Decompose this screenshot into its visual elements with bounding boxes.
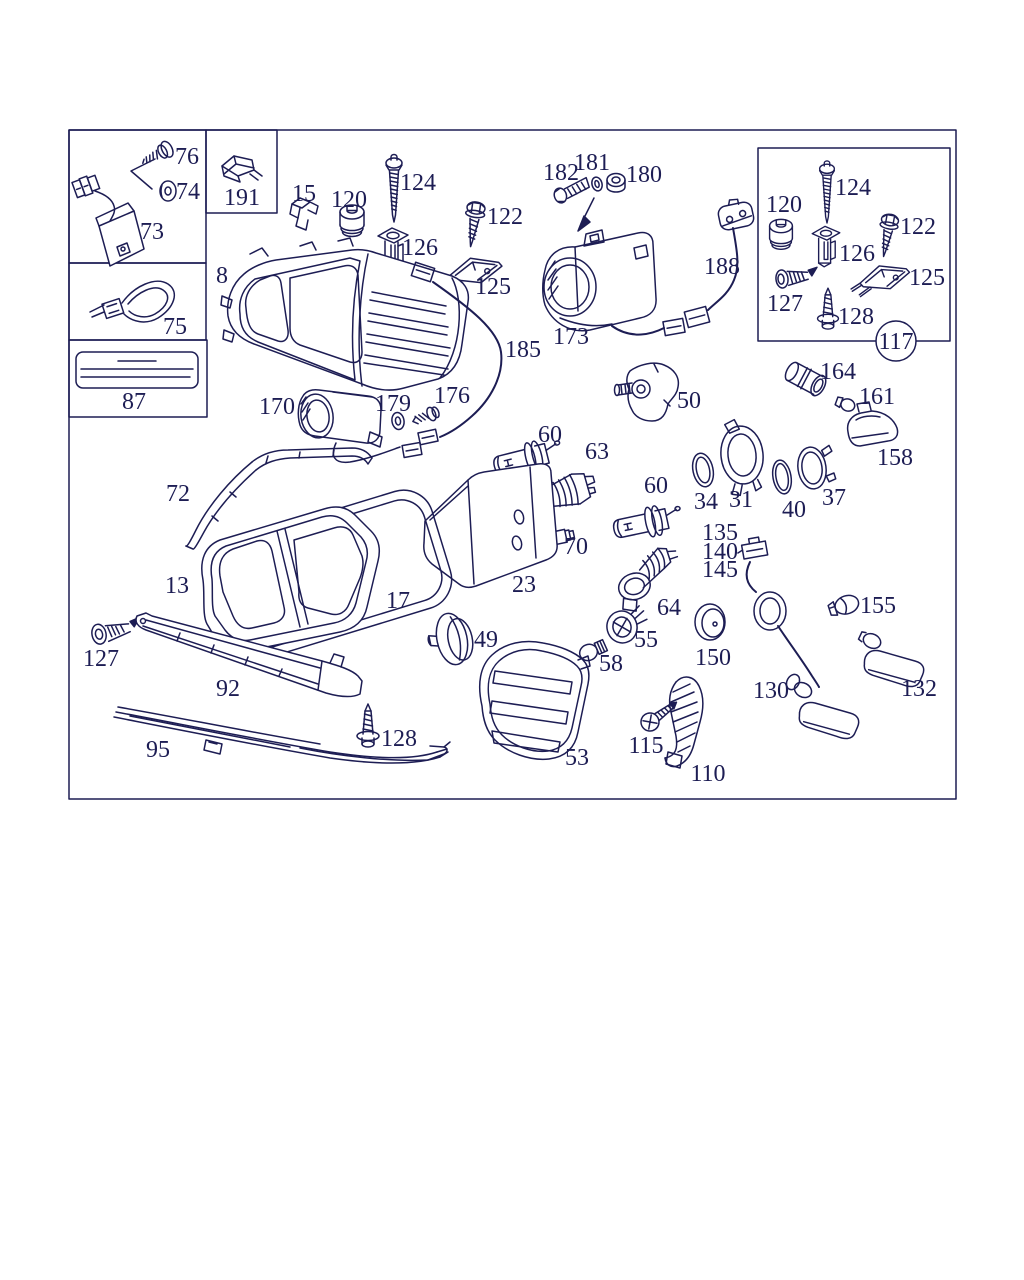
part-label-95: 95 [146,737,170,763]
part-label-145: 145 [702,557,738,583]
part-label-180: 180 [626,162,662,188]
part-128-screw-b [818,288,839,329]
part-label-60b: 60 [644,473,668,499]
part-label-17: 17 [386,588,410,614]
part-label-87: 87 [122,389,146,415]
part-170-fog-lamp [298,390,438,463]
part-label-8: 8 [216,263,228,289]
part-label-23: 23 [512,572,536,598]
part-label-55: 55 [634,627,658,653]
part-115-screw [637,696,682,735]
part-label-circled-117: 117 [878,329,913,355]
part-110-bracket [665,677,703,768]
part-50-adjuster [615,363,679,421]
part-label-40: 40 [782,497,806,523]
part-label-74: 74 [176,179,200,205]
part-128-screw-c [357,704,379,747]
part-150-cap [695,604,725,640]
part-53-lens [480,642,590,760]
part-label-49: 49 [474,627,498,653]
part-label-164: 164 [820,359,856,385]
part-label-63: 63 [585,439,609,465]
part-label-127a: 127 [767,291,803,317]
part-label-72: 72 [166,481,190,507]
part-label-179: 179 [375,391,411,417]
part-124-screw-b [820,161,835,223]
part-label-185: 185 [505,337,541,363]
part-191-clip [222,156,262,182]
part-13-lens [202,507,380,652]
part-87-label-plate [76,352,198,388]
part-173-fog-lamp [543,230,656,331]
part-label-110: 110 [690,761,725,787]
part-label-37: 37 [822,485,846,511]
part-180-nut [607,174,625,193]
part-label-155: 155 [860,593,896,619]
part-label-70: 70 [564,534,588,560]
part-181-washer [590,176,603,192]
part-label-130: 130 [753,678,789,704]
part-label-60a: 60 [538,422,562,448]
part-label-125a: 125 [475,274,511,300]
part-label-170: 170 [259,394,295,420]
part-label-124a: 124 [400,170,436,196]
part-label-120b: 120 [766,192,802,218]
part-label-173: 173 [553,324,589,350]
parts-diagram-page: 7674731917587815120124126122125182181180… [0,0,1024,1280]
exploded-parts-diagram: 7674731917587815120124126122125182181180… [0,0,1024,1280]
part-label-128a: 128 [838,304,874,330]
part-40-oring [770,459,794,496]
part-label-122b: 122 [900,214,936,240]
part-155-bulb [827,592,861,618]
part-37-ring [795,444,836,491]
part-label-92: 92 [216,676,240,702]
part-label-176: 176 [434,383,470,409]
part-75-cable-tie [90,281,174,322]
part-120-grommet-b [770,219,793,249]
part-31-ring [717,417,767,497]
part-label-122a: 122 [487,204,523,230]
part-74-grommet [160,181,176,201]
part-49-cap [424,609,477,669]
part-label-64: 64 [657,595,681,621]
part-23-reflector [424,464,557,588]
part-label-58: 58 [599,651,623,677]
arrow-head-173 [578,216,590,231]
part-label-115: 115 [628,733,663,759]
part-135-connector [736,536,768,560]
part-label-158: 158 [877,445,913,471]
part-73-control-unit [72,159,155,266]
part-label-31: 31 [729,487,753,513]
part-60-bulb-b [611,501,685,545]
part-label-15: 15 [292,181,316,207]
part-126-holder-b [812,226,840,266]
part-label-34: 34 [694,489,718,515]
part-label-127b: 127 [83,646,119,672]
part-label-76: 76 [175,144,199,170]
part-label-73: 73 [140,219,164,245]
part-130-harness [747,562,861,740]
part-label-13: 13 [165,573,189,599]
part-label-132: 132 [901,676,937,702]
part-label-161: 161 [859,384,895,410]
part-34-oring [690,451,717,488]
part-label-126b: 126 [839,241,875,267]
part-label-75: 75 [163,314,187,340]
part-label-191: 191 [224,185,260,211]
part-label-124b: 124 [835,175,871,201]
part-label-50: 50 [677,388,701,414]
part-label-126a: 126 [402,235,438,261]
part-label-120a: 120 [331,187,367,213]
part-label-53: 53 [565,745,589,771]
part-122-screw-a [461,201,486,248]
part-label-150: 150 [695,645,731,671]
part-127-screw-b [775,266,819,288]
part-122-screw-b [875,213,900,258]
part-label-125b: 125 [909,265,945,291]
part-127-screw-c [90,615,143,645]
part-label-181: 181 [574,150,610,176]
part-125-bracket-b [849,263,912,298]
part-label-128b: 128 [381,726,417,752]
part-161-bulb [834,395,856,413]
part-label-188: 188 [704,254,740,280]
